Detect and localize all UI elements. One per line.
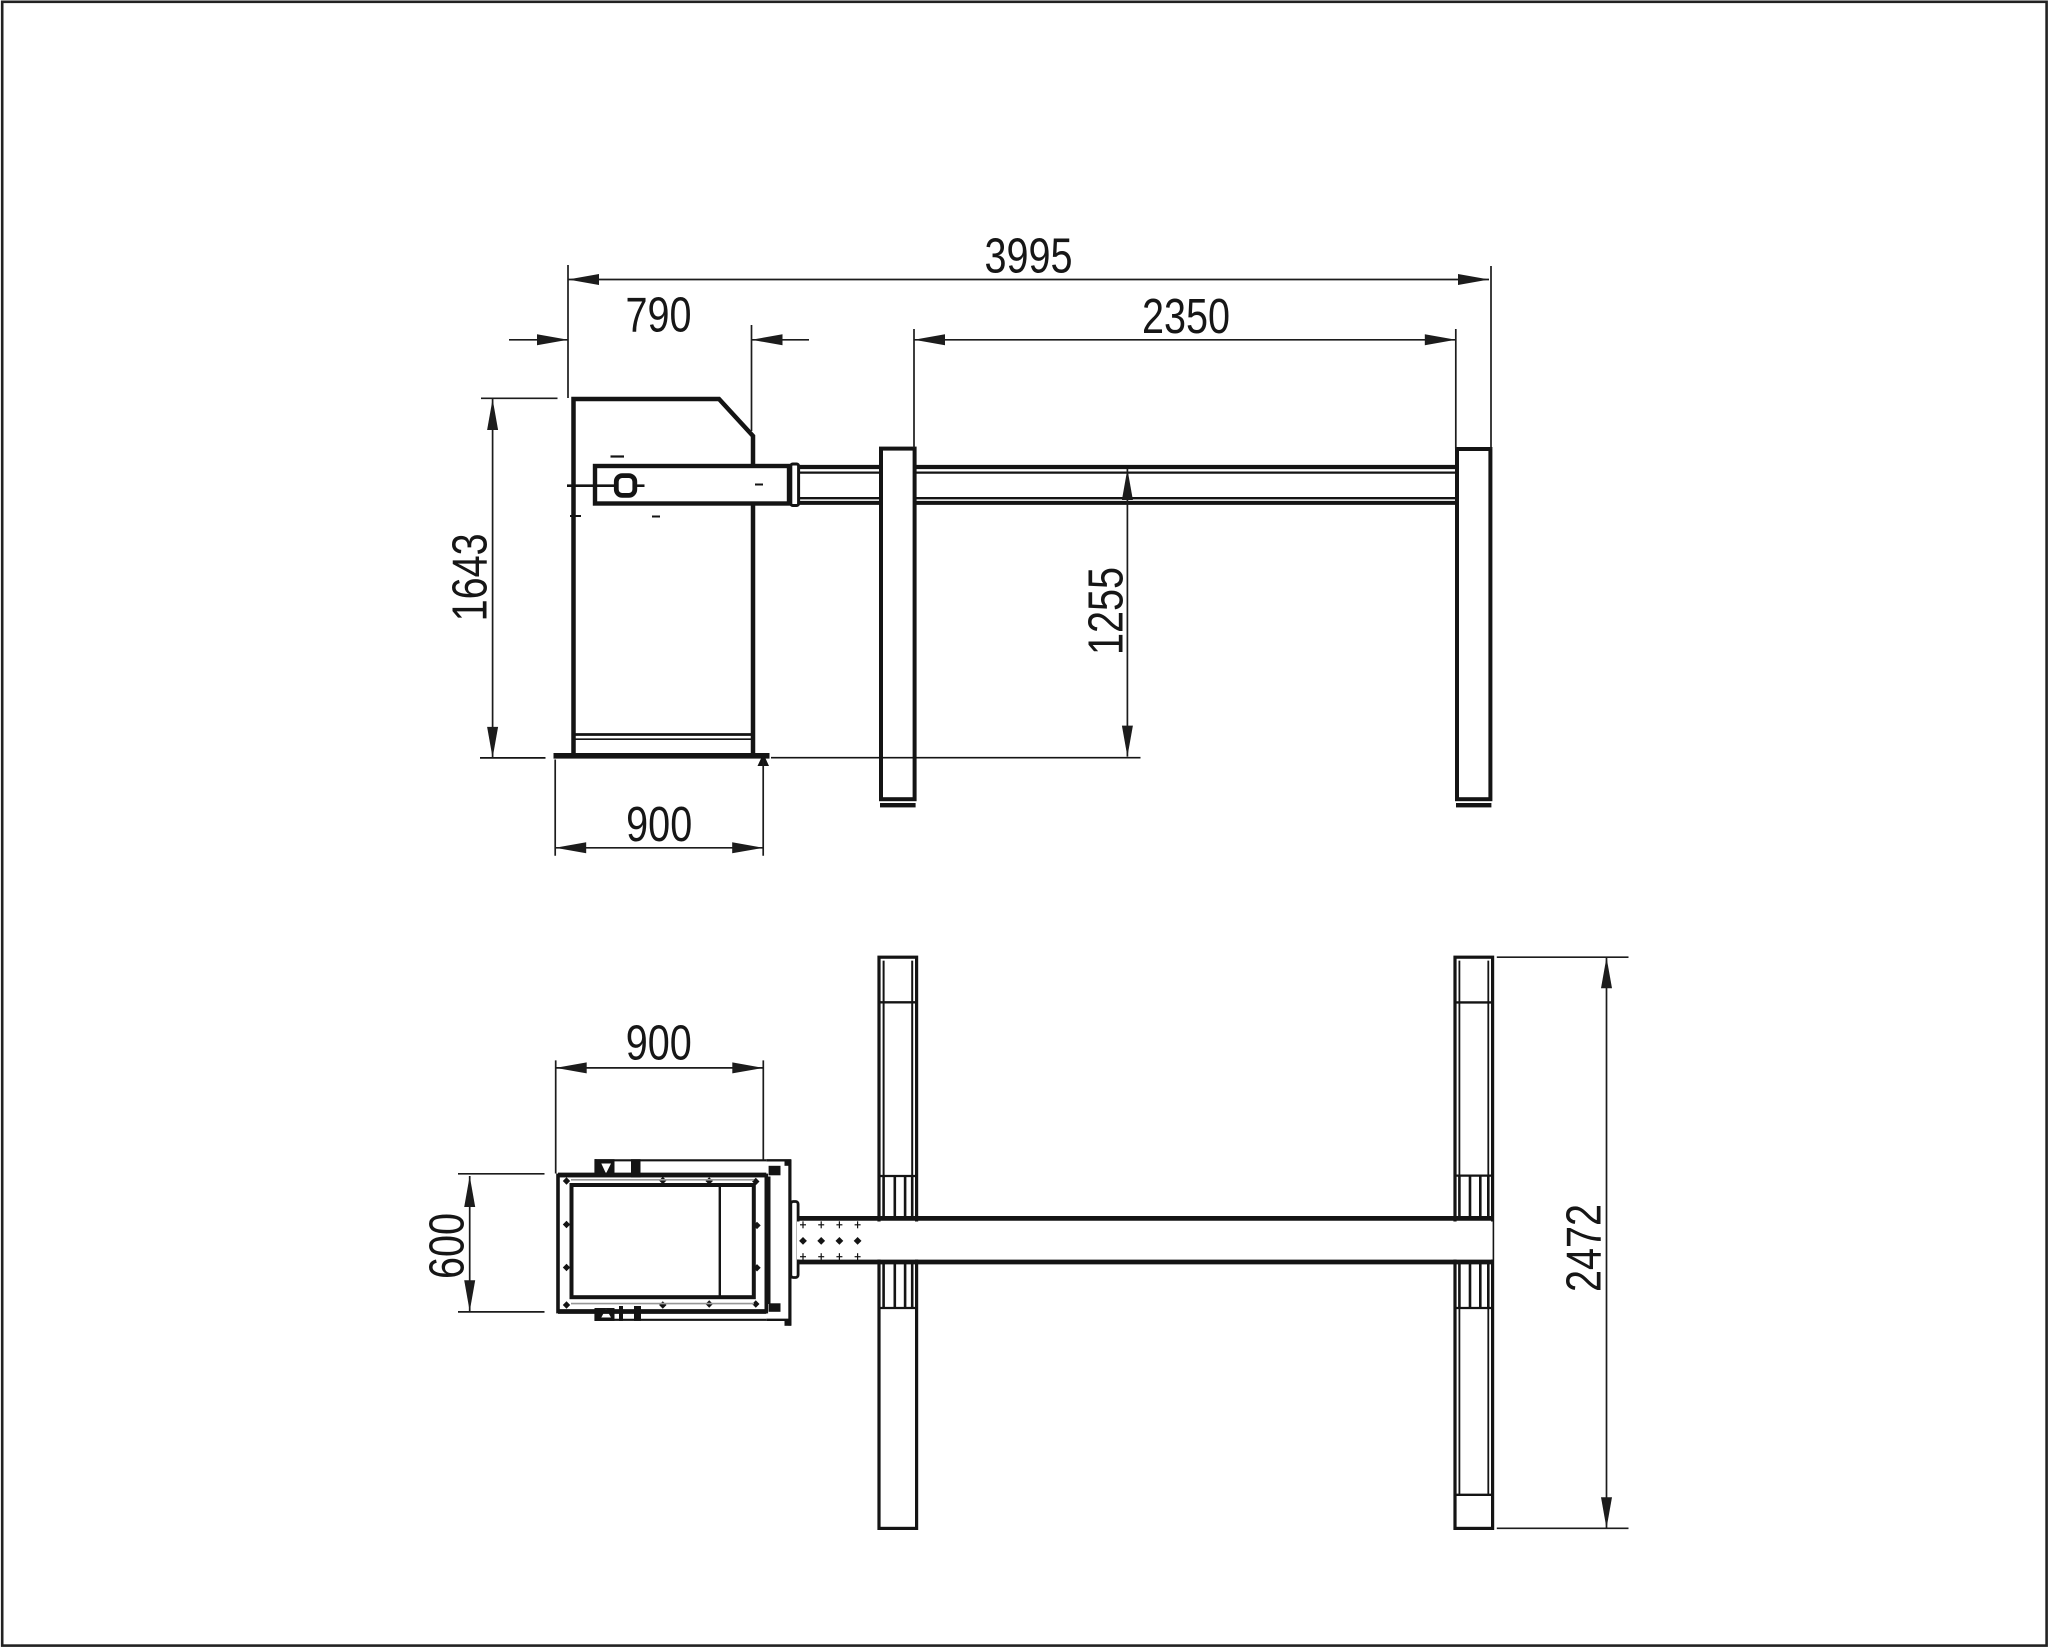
svg-text:2472: 2472 [1556, 1204, 1611, 1292]
svg-text:1255: 1255 [1078, 567, 1133, 655]
svg-text:900: 900 [626, 797, 692, 852]
svg-text:1643: 1643 [442, 533, 497, 621]
svg-text:3995: 3995 [984, 228, 1072, 283]
svg-text:790: 790 [625, 287, 691, 342]
svg-text:900: 900 [626, 1015, 692, 1070]
svg-text:2350: 2350 [1142, 289, 1230, 344]
svg-text:600: 600 [419, 1213, 474, 1279]
